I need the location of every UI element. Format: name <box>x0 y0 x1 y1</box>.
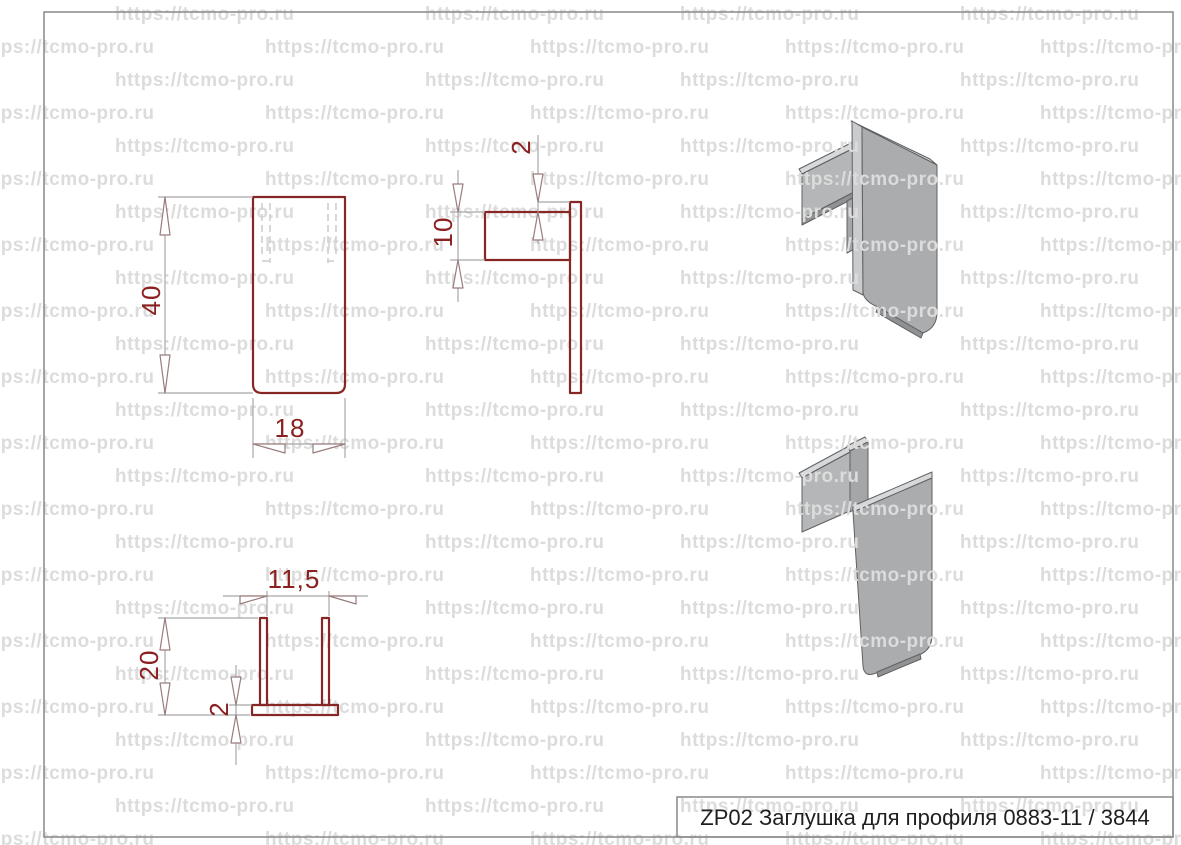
watermark-text: https://tcmo-pro.ru <box>680 4 859 25</box>
watermark-text: https://tcmo-pro.ru <box>530 565 709 586</box>
watermark-text: https://tcmo-pro.ru <box>680 202 859 223</box>
watermark-text: https://tcmo-pro.ru <box>265 169 444 190</box>
watermark-text: https://tcmo-pro.ru <box>0 433 154 454</box>
dim-label: 10 <box>428 217 458 248</box>
watermark-text: https://tcmo-pro.ru <box>680 268 859 289</box>
watermark-text: https://tcmo-pro.ru <box>265 367 444 388</box>
watermark-text: https://tcmo-pro.ru <box>785 235 964 256</box>
watermark-text: https://tcmo-pro.ru <box>1040 103 1181 124</box>
watermark-text: https://tcmo-pro.ru <box>425 598 604 619</box>
watermark-text: https://tcmo-pro.ru <box>785 103 964 124</box>
watermark-text: https://tcmo-pro.ru <box>1040 367 1181 388</box>
watermark-text: https://tcmo-pro.ru <box>680 400 859 421</box>
watermark-text: https://tcmo-pro.ru <box>115 202 294 223</box>
watermark-text: https://tcmo-pro.ru <box>265 103 444 124</box>
watermark-text: https://tcmo-pro.ru <box>1040 433 1181 454</box>
watermark-text: https://tcmo-pro.ru <box>0 367 154 388</box>
title-block-label: ZP02 Заглушка для профиля 0883-11 / 3844 <box>700 805 1149 830</box>
watermark-text: https://tcmo-pro.ru <box>785 367 964 388</box>
watermark-text: https://tcmo-pro.ru <box>960 598 1139 619</box>
watermark-text: https://tcmo-pro.ru <box>960 136 1139 157</box>
watermark-text: https://tcmo-pro.ru <box>680 532 859 553</box>
drawing-page: https://tcmo-pro.ruhttps://tcmo-pro.ruht… <box>0 0 1181 845</box>
watermark-text: https://tcmo-pro.ru <box>0 763 154 784</box>
watermark-text: https://tcmo-pro.ru <box>530 37 709 58</box>
arrowhead <box>160 618 170 650</box>
watermark-text: https://tcmo-pro.ru <box>425 400 604 421</box>
dim-label: 40 <box>136 285 166 316</box>
watermark-text: https://tcmo-pro.ru <box>1040 37 1181 58</box>
watermark-text: https://tcmo-pro.ru <box>530 235 709 256</box>
watermark-text: https://tcmo-pro.ru <box>680 334 859 355</box>
watermark-text: https://tcmo-pro.ru <box>115 466 294 487</box>
side-plate-outline <box>570 202 581 393</box>
watermark-text: https://tcmo-pro.ru <box>960 202 1139 223</box>
watermark-text: https://tcmo-pro.ru <box>115 136 294 157</box>
watermark-text: https://tcmo-pro.ru <box>265 499 444 520</box>
watermark-text: https://tcmo-pro.ru <box>680 598 859 619</box>
dim-label: 18 <box>275 413 306 443</box>
watermark-text: https://tcmo-pro.ru <box>1040 301 1181 322</box>
watermark-text: https://tcmo-pro.ru <box>530 499 709 520</box>
watermark-text: https://tcmo-pro.ru <box>530 169 709 190</box>
watermark-text: https://tcmo-pro.ru <box>530 697 709 718</box>
watermark-text: https://tcmo-pro.ru <box>785 499 964 520</box>
watermark-text: https://tcmo-pro.ru <box>0 301 154 322</box>
watermark-text: https://tcmo-pro.ru <box>115 796 294 817</box>
watermark-text: https://tcmo-pro.ru <box>530 631 709 652</box>
front-outline <box>253 197 345 393</box>
watermark-text: https://tcmo-pro.ru <box>265 631 444 652</box>
watermark-text: https://tcmo-pro.ru <box>785 37 964 58</box>
dim-label: 20 <box>134 650 164 681</box>
watermark-text: https://tcmo-pro.ru <box>0 631 154 652</box>
dim-label: 2 <box>506 139 536 154</box>
watermark-text: https://tcmo-pro.ru <box>0 235 154 256</box>
watermark-text: https://tcmo-pro.ru <box>785 169 964 190</box>
watermark-text: https://tcmo-pro.ru <box>1040 763 1181 784</box>
arrowhead <box>329 596 356 604</box>
arrowhead <box>160 355 170 393</box>
watermark-text: https://tcmo-pro.ru <box>115 70 294 91</box>
dim-label: 2 <box>204 701 234 716</box>
watermark-text: https://tcmo-pro.ru <box>0 565 154 586</box>
watermark-text: https://tcmo-pro.ru <box>0 37 154 58</box>
watermark-text: https://tcmo-pro.ru <box>425 268 604 289</box>
watermark-text: https://tcmo-pro.ru <box>0 697 154 718</box>
arrowhead <box>231 677 241 705</box>
watermark-text: https://tcmo-pro.ru <box>1040 499 1181 520</box>
watermark-text: https://tcmo-pro.ru <box>425 70 604 91</box>
watermark-text: https://tcmo-pro.ru <box>680 70 859 91</box>
arrowhead <box>160 683 170 715</box>
watermark-text: https://tcmo-pro.ru <box>1040 631 1181 652</box>
watermark-text: https://tcmo-pro.ru <box>425 466 604 487</box>
watermark-text: https://tcmo-pro.ru <box>530 103 709 124</box>
watermark-text: https://tcmo-pro.ru <box>425 4 604 25</box>
watermark-text: https://tcmo-pro.ru <box>960 730 1139 751</box>
watermark-text: https://tcmo-pro.ru <box>960 268 1139 289</box>
watermark-text: https://tcmo-pro.ru <box>960 70 1139 91</box>
watermark-text: https://tcmo-pro.ru <box>1040 235 1181 256</box>
watermark-text: https://tcmo-pro.ru <box>115 334 294 355</box>
watermark-text: https://tcmo-pro.ru <box>530 367 709 388</box>
dim-label: 11,5 <box>268 564 321 594</box>
watermark-text: https://tcmo-pro.ru <box>530 763 709 784</box>
watermark-text: https://tcmo-pro.ru <box>265 301 444 322</box>
watermark-text: https://tcmo-pro.ru <box>960 664 1139 685</box>
watermark-text: https://tcmo-pro.ru <box>960 4 1139 25</box>
watermark-text: https://tcmo-pro.ru <box>530 433 709 454</box>
watermark-text: https://tcmo-pro.ru <box>0 103 154 124</box>
watermark-text: https://tcmo-pro.ru <box>265 235 444 256</box>
watermark-text: https://tcmo-pro.ru <box>530 301 709 322</box>
watermark-text: https://tcmo-pro.ru <box>1040 169 1181 190</box>
watermark-text: https://tcmo-pro.ru <box>0 169 154 190</box>
watermark-text: https://tcmo-pro.ru <box>115 532 294 553</box>
watermark-text: https://tcmo-pro.ru <box>115 4 294 25</box>
watermark-text: https://tcmo-pro.ru <box>785 565 964 586</box>
watermark-text: https://tcmo-pro.ru <box>785 433 964 454</box>
dim-front-height: 40 <box>136 197 253 393</box>
watermark-text: https://tcmo-pro.ru <box>785 697 964 718</box>
watermark-text: https://tcmo-pro.ru <box>960 466 1139 487</box>
watermark-text: https://tcmo-pro.ru <box>1040 565 1181 586</box>
watermark-text: https://tcmo-pro.ru <box>680 136 859 157</box>
watermark-text: https://tcmo-pro.ru <box>425 796 604 817</box>
watermark-text: https://tcmo-pro.ru <box>1040 697 1181 718</box>
watermark-text: https://tcmo-pro.ru <box>425 730 604 751</box>
watermark-text: https://tcmo-pro.ru <box>785 763 964 784</box>
watermark-text: https://tcmo-pro.ru <box>115 400 294 421</box>
watermark-text: https://tcmo-pro.ru <box>425 664 604 685</box>
drawing-canvas: https://tcmo-pro.ruhttps://tcmo-pro.ruht… <box>0 0 1181 845</box>
watermark-text: https://tcmo-pro.ru <box>115 730 294 751</box>
watermark-text: https://tcmo-pro.ru <box>425 532 604 553</box>
arrowhead <box>231 715 241 743</box>
watermark-text: https://tcmo-pro.ru <box>960 334 1139 355</box>
watermark-text: https://tcmo-pro.ru <box>265 763 444 784</box>
bottom-left-leg-outline <box>260 618 267 705</box>
watermark-text: https://tcmo-pro.ru <box>265 37 444 58</box>
watermark-text: https://tcmo-pro.ru <box>425 334 604 355</box>
watermark-text: https://tcmo-pro.ru <box>785 631 964 652</box>
watermark-text: https://tcmo-pro.ru <box>960 532 1139 553</box>
watermark-text: https://tcmo-pro.ru <box>785 301 964 322</box>
watermark-text: https://tcmo-pro.ru <box>680 730 859 751</box>
watermark-layer: https://tcmo-pro.ruhttps://tcmo-pro.ruht… <box>0 4 1181 845</box>
watermark-text: https://tcmo-pro.ru <box>680 466 859 487</box>
watermark-text: https://tcmo-pro.ru <box>960 400 1139 421</box>
watermark-text: https://tcmo-pro.ru <box>0 499 154 520</box>
watermark-text: https://tcmo-pro.ru <box>680 664 859 685</box>
